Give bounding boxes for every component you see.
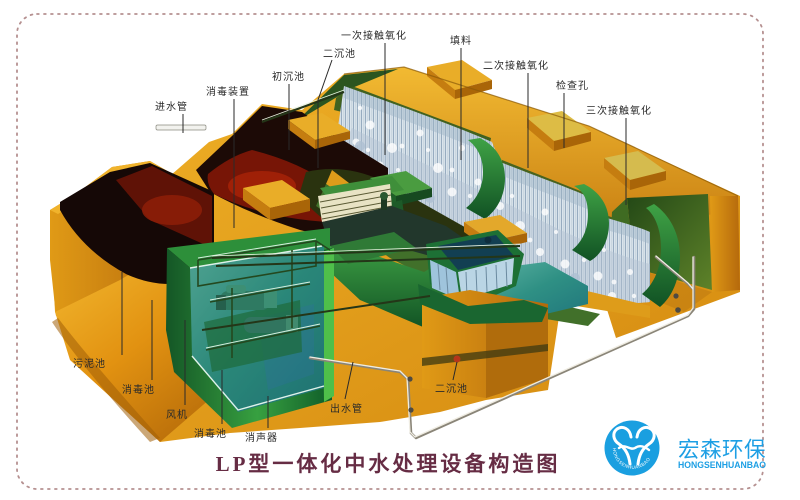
svg-text:消毒池: 消毒池: [194, 427, 227, 440]
svg-text:出水管: 出水管: [330, 402, 363, 415]
svg-text:污泥池: 污泥池: [73, 357, 106, 370]
svg-text:消声器: 消声器: [245, 431, 278, 444]
svg-text:LP型一体化中水处理设备构造图: LP型一体化中水处理设备构造图: [216, 452, 561, 476]
svg-text:初沉池: 初沉池: [272, 70, 305, 83]
svg-text:三次接触氧化: 三次接触氧化: [586, 104, 652, 117]
svg-text:二次接触氧化: 二次接触氧化: [483, 59, 549, 72]
svg-text:填料: 填料: [450, 34, 472, 47]
svg-text:进水管: 进水管: [155, 100, 188, 113]
svg-text:检查孔: 检查孔: [556, 79, 589, 92]
svg-text:风机: 风机: [166, 408, 188, 421]
svg-text:宏森环保: 宏森环保: [678, 438, 766, 462]
svg-text:一次接触氧化: 一次接触氧化: [341, 29, 407, 42]
svg-text:HONGSENHUANBAO: HONGSENHUANBAO: [678, 460, 766, 471]
svg-text:二沉池: 二沉池: [323, 47, 356, 60]
svg-text:消毒池: 消毒池: [122, 383, 155, 396]
svg-text:消毒装置: 消毒装置: [206, 85, 250, 98]
svg-text:二沉池: 二沉池: [435, 382, 468, 395]
